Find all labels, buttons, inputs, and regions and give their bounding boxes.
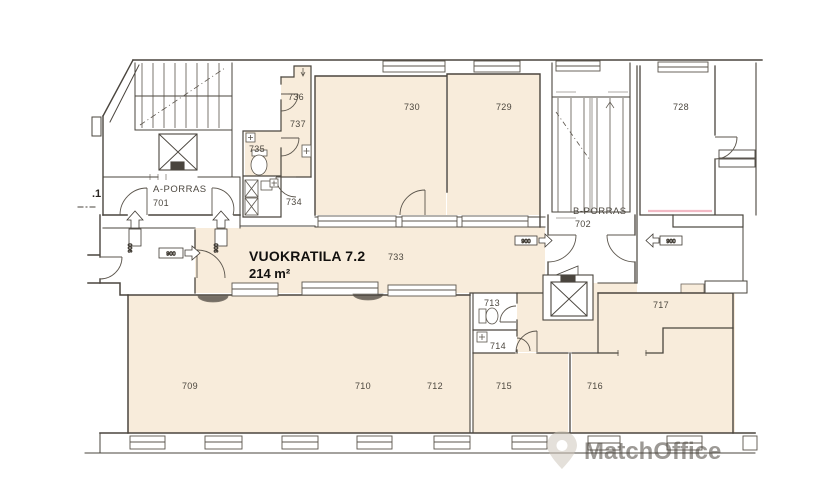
arrow-900-corridor-entry: 900 (159, 246, 200, 260)
rental-area: 214 m² (249, 266, 291, 281)
stair-b-name: B-PORRAS (573, 206, 627, 217)
stair-b-number: 702 (575, 219, 591, 229)
room-label-729: 729 (496, 102, 512, 112)
floorplan-page: 900 900 900 900 900 .1 A-PORRAS 701 B-PO… (0, 0, 825, 500)
elevator-b (543, 266, 593, 320)
room-label-737: 737 (290, 119, 306, 129)
elevator-b-tag (561, 276, 575, 282)
stair-a-name: A-PORRAS (153, 184, 207, 195)
door-width-label: 900 (521, 239, 530, 245)
toilet-713 (477, 308, 498, 342)
room-label-715: 715 (496, 381, 512, 391)
shower-boxes (245, 179, 278, 215)
room-label-736: 736 (288, 92, 304, 102)
arrow-900-b-right: 900 (646, 234, 682, 247)
door-width-label: 900 (666, 239, 675, 245)
room-label-733: 733 (388, 252, 404, 262)
room-label-717: 717 (653, 300, 669, 310)
partial-room-label: .1 (92, 188, 101, 200)
arrow-900-a-right: 900 (213, 211, 229, 253)
arrow-900-b-left: 900 (515, 234, 552, 247)
room-label-728: 728 (673, 102, 689, 112)
room-label-734: 734 (286, 197, 302, 207)
elevator-a (159, 134, 197, 170)
room-label-714: 714 (490, 341, 506, 351)
door-width-label: 900 (214, 243, 220, 252)
room-label-709: 709 (182, 381, 198, 391)
door-width-label: 900 (128, 243, 134, 252)
room-label-712: 712 (427, 381, 443, 391)
stair-a-number: 701 (153, 198, 169, 208)
window-top-row (383, 61, 708, 72)
watermark-text: MatchOffice (584, 438, 721, 465)
elevator-a-tag (171, 162, 184, 169)
arrow-900-a-left: 900 (127, 211, 143, 253)
rental-title: VUOKRATILA 7.2 (249, 248, 365, 264)
room-label-710: 710 (355, 381, 371, 391)
room-label-730: 730 (404, 102, 420, 112)
stairs-b (556, 92, 628, 218)
room-label-735: 735 (249, 144, 265, 154)
sink-737 (302, 145, 311, 157)
room-label-713: 713 (484, 298, 500, 308)
room-label-716: 716 (587, 381, 603, 391)
door-width-label: 900 (166, 252, 175, 258)
watermark-pin-icon (547, 431, 577, 469)
floorplan-drawing: 900 900 900 900 900 .1 A-PORRAS 701 B-PO… (0, 0, 825, 500)
